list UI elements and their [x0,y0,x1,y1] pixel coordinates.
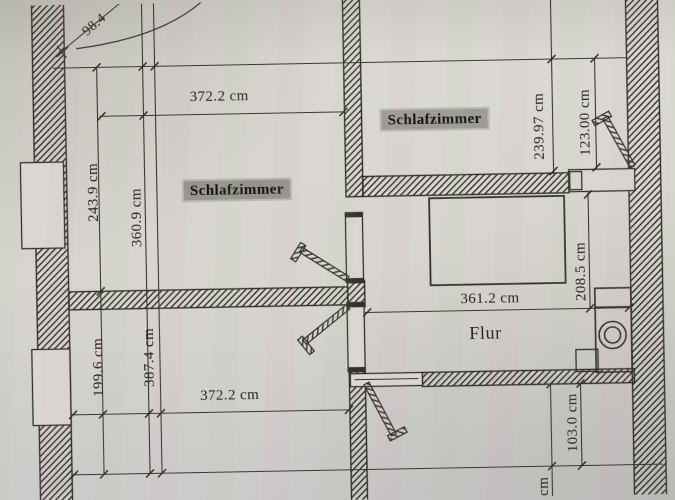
door-jamb [348,368,365,372]
wall-center-bottom [349,370,367,500]
door-swing-arc [55,0,208,58]
door-jamb [347,279,364,283]
dimension-label-lower-left-outer: 199.6 cm [90,338,108,397]
dimension-label-upper-left-outer: 243.9 cm [85,163,103,222]
dimension-label-lower-left-inner: 387.4 cm [141,328,159,387]
wall-mid-left [69,287,348,310]
dimension-label-hall-height: 208.5 cm [572,242,590,301]
dimension-label-bottom-width: 372.2 cm [200,387,259,405]
wall-bottom [422,369,634,387]
wall-center-top [342,0,363,197]
washing-machine-icon [595,288,633,373]
door-jamb [347,303,364,307]
dimension-label-hall-width: 361.2 cm [460,290,519,308]
room-label-highlight: Schlafzimmer [381,109,487,130]
room-label-highlight: Schlafzimmer [184,179,290,200]
room-label-hallway: Flur [469,323,502,345]
dimension-label-lower-right-height: 103.0 cm [564,393,582,452]
window-left-upper [20,162,65,249]
floor-plan-photo: 372.2 cm 243.9 cm 360.9 cm Schlafzimmer … [0,0,675,500]
window-left-lower [32,349,71,426]
dimension-label-upper-right-outer: 239.97 cm [531,93,549,160]
dimension-label-upper-left-inner: 360.9 cm [128,188,146,247]
wall-right [625,0,666,500]
interior-rectangle [429,196,566,285]
dimension-label-partial-unit: cm [536,477,553,496]
door-leaf-upper-central [290,242,351,291]
floor-plan: 372.2 cm 243.9 cm 360.9 cm Schlafzimmer … [0,0,675,500]
small-fixture [576,349,598,371]
dimension-label-upper-right-inner: 123.00 cm [577,89,595,156]
door-jamb [345,213,362,217]
dimension-label-top-width: 372.2 cm [190,88,249,106]
door-opening-upper-central [345,213,363,283]
room-label-bedroom-left: Schlafzimmer [184,181,290,200]
wall-top-right [363,173,569,197]
room-label-bedroom-right: Schlafzimmer [382,111,488,130]
door-opening-lower-central [347,303,365,372]
